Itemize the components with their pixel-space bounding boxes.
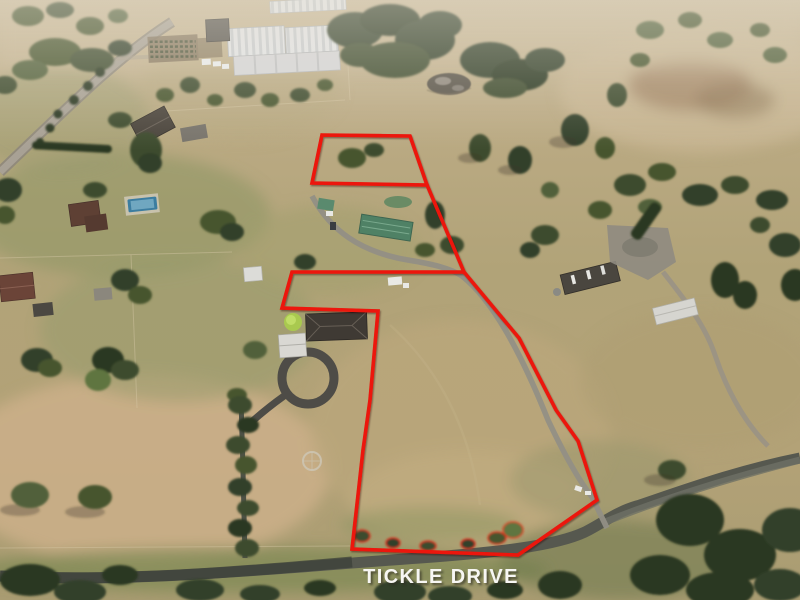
aerial-property-photo: // bind stroke color of boundary shapes … [0, 0, 800, 600]
garden-patch [384, 196, 412, 208]
white-carport [243, 266, 262, 282]
swimming-pool [124, 193, 160, 215]
main-house [306, 312, 368, 341]
small-gray-shed [94, 287, 113, 301]
small-dark-shed [32, 302, 53, 317]
water-tank [553, 288, 561, 296]
haze-overlay [0, 0, 800, 150]
road-name-label: TICKLE DRIVE [363, 566, 519, 588]
lime-tree [284, 313, 302, 331]
aerial-photo-canvas: // bind stroke color of boundary shapes … [0, 0, 800, 600]
trailer [388, 276, 403, 285]
white-garage [278, 333, 307, 358]
red-roof-house [0, 272, 35, 301]
garden-circle [303, 452, 321, 470]
